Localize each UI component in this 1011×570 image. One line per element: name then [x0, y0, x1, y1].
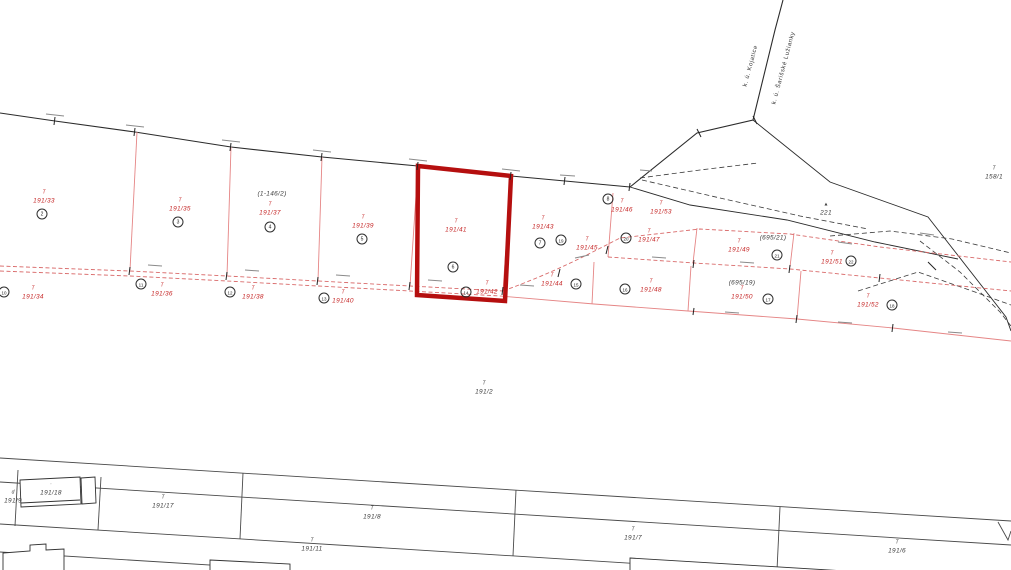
building-outlines: [3, 477, 862, 570]
cadastral-map-canvas[interactable]: 191/33T191/35T191/37T191/39T191/41T191/4…: [0, 0, 1011, 570]
parcel-number-circle: 5: [357, 234, 368, 245]
southern-parcel-lines: [0, 458, 1011, 570]
parcel-number-circle: 13: [319, 293, 330, 304]
parcel-number-circle: 6: [448, 262, 459, 273]
parcel-number-circle: 19: [556, 235, 567, 246]
parcel-number-circle: 4: [265, 222, 276, 233]
parcel-number-circle: 8: [603, 194, 614, 205]
parcel-number-circle: 14: [461, 287, 472, 298]
parcel-number-circle: 16: [620, 284, 631, 295]
parcel-number-circle: 17: [763, 294, 774, 305]
parcel-number-circle: 22: [846, 256, 857, 267]
parcel-number-circle: 20: [621, 233, 632, 244]
parcel-number-circle: 11: [136, 279, 147, 290]
red-parcel-lines: [130, 132, 1011, 341]
parcel-number-circle: 12: [225, 287, 236, 298]
parcel-number-circle: 3: [173, 217, 184, 228]
parcel-number-circle: 15: [571, 279, 582, 290]
highlighted-parcel[interactable]: [417, 166, 511, 301]
parcel-number-circle: 18: [887, 300, 898, 311]
map-linework: [0, 0, 1011, 570]
dashed-boundary-lines: [640, 163, 1011, 326]
parcel-number-circle: 2: [37, 209, 48, 220]
parcel-number-circle: 7: [535, 238, 546, 249]
parcel-number-circle: 21: [772, 250, 783, 261]
